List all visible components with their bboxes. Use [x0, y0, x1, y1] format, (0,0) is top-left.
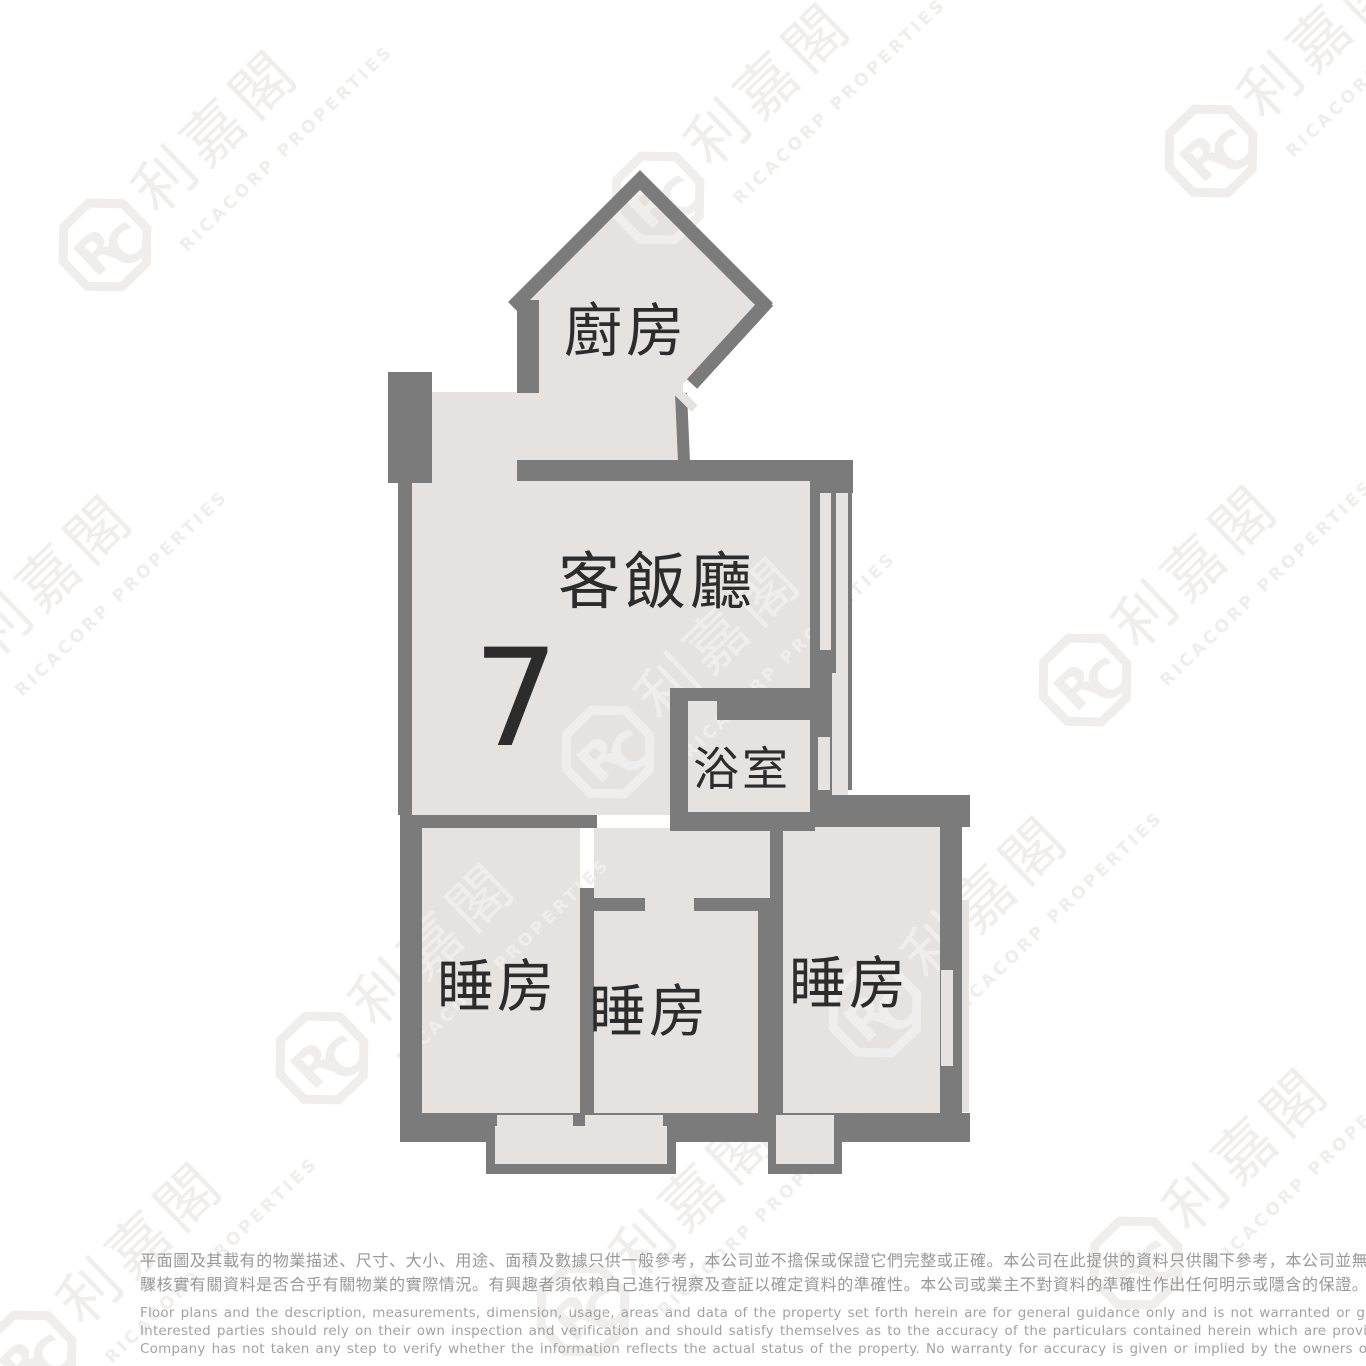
disclaimer-chinese-line-1: 平面圖及其載有的物業描述、尺寸、大小、用途、面積及數據只供一般參考，本公司並不擔…: [140, 1247, 1366, 1271]
east-window-outer-edge: [848, 493, 852, 790]
bedroom-middle-top-left-wall: [594, 898, 645, 911]
ricacorp-watermark: R C 利嘉閣 RICACORP PROPERTIES: [1026, 412, 1366, 757]
ricacorp-watermark: R C 利嘉閣 RICACORP PROPERTIES: [46, 0, 397, 322]
bay-left-wall-pane-2: [585, 1115, 663, 1126]
bottom-exterior-wall: [400, 1113, 970, 1142]
bay-window-right-glass: [776, 1126, 834, 1164]
ricacorp-watermark: R C 利嘉閣 RICACORP PROPERTIES: [1152, 0, 1366, 228]
bedroom-middle-top-right-wall: [694, 898, 783, 911]
bathroom-top-wall: [670, 688, 813, 701]
unit-number-label: 7: [473, 620, 559, 777]
watermark-monogram-c: C: [18, 1324, 87, 1366]
disclaimer-english-line-2: Interested parties should rely on their …: [140, 1323, 1366, 1339]
east-wall-top-corner: [820, 460, 853, 493]
watermark-brand-chinese: 利嘉閣: [1100, 470, 1295, 662]
bathroom-bottom-wall: [670, 812, 815, 831]
left-exterior-wall-upper: [398, 483, 412, 815]
bathroom-left-wall: [670, 701, 688, 823]
right-wall-outer-strip: [962, 900, 969, 1112]
east-window-pane-1: [820, 497, 831, 650]
left-exterior-wall-lower: [400, 815, 422, 1142]
room-label-living-dining: 客飯廳: [558, 545, 756, 618]
room-label-bedroom-middle: 睡房: [589, 979, 709, 1045]
bedroom-middle-right-wall: [758, 911, 783, 1120]
bay-right-wall-pane: [776, 1115, 834, 1126]
bedroom-left-top-wall: [418, 815, 597, 828]
room-label-bathroom: 浴室: [693, 742, 791, 796]
room-label-bedroom-right: 睡房: [789, 951, 909, 1017]
disclaimer-chinese-line-2: 驟核實有關資料是否合乎有關物業的實際情況。有興趣者須依賴自己進行視察及查証以確定…: [140, 1271, 1366, 1295]
disclaimer-english-line-3: Company has not taken any step to verify…: [140, 1341, 1366, 1357]
bay-window-left-glass: [495, 1126, 667, 1164]
room-label-kitchen: 廚房: [564, 297, 688, 365]
left-wall-column: [388, 372, 432, 483]
kitchen-left-wall: [517, 300, 539, 393]
right-exterior-wall: [940, 795, 962, 1142]
right-wall-window-pane: [941, 970, 953, 1066]
living-room-top-wall: [517, 460, 853, 481]
watermark-layer: R C 利嘉閣 RICACORP PROPERTIES R C 利嘉閣 RICA…: [0, 0, 1366, 1366]
bathroom-top-inner-wall: [717, 701, 813, 720]
watermark-brand-chinese: 利嘉閣: [1151, 1053, 1346, 1245]
room-label-bedroom-left: 睡房: [437, 954, 557, 1020]
watermark-brand-chinese: 利嘉閣: [120, 35, 315, 227]
ricacorp-watermark: R C 利嘉閣 RICACORP PROPERTIES: [0, 422, 233, 767]
east-window-mullion: [831, 493, 836, 653]
east-window-pane-2: [836, 497, 848, 788]
disclaimer-english-line-1: Floor plans and the description, measure…: [140, 1305, 1366, 1321]
ricacorp-watermark: R C 利嘉閣 RICACORP PROPERTIES: [599, 0, 950, 275]
east-window-pane-3: [818, 737, 830, 790]
east-window-inner-wall: [810, 481, 820, 653]
floor-plan-page: R C 利嘉閣 RICACORP PROPERTIES R C 利嘉閣 RICA…: [0, 0, 1366, 1366]
bay-left-wall-pane-1: [497, 1115, 573, 1126]
floor-plan-drawing: R C 利嘉閣 RICACORP PROPERTIES R C 利嘉閣 RICA…: [0, 0, 1366, 1366]
corridor-right-wall: [770, 831, 783, 898]
